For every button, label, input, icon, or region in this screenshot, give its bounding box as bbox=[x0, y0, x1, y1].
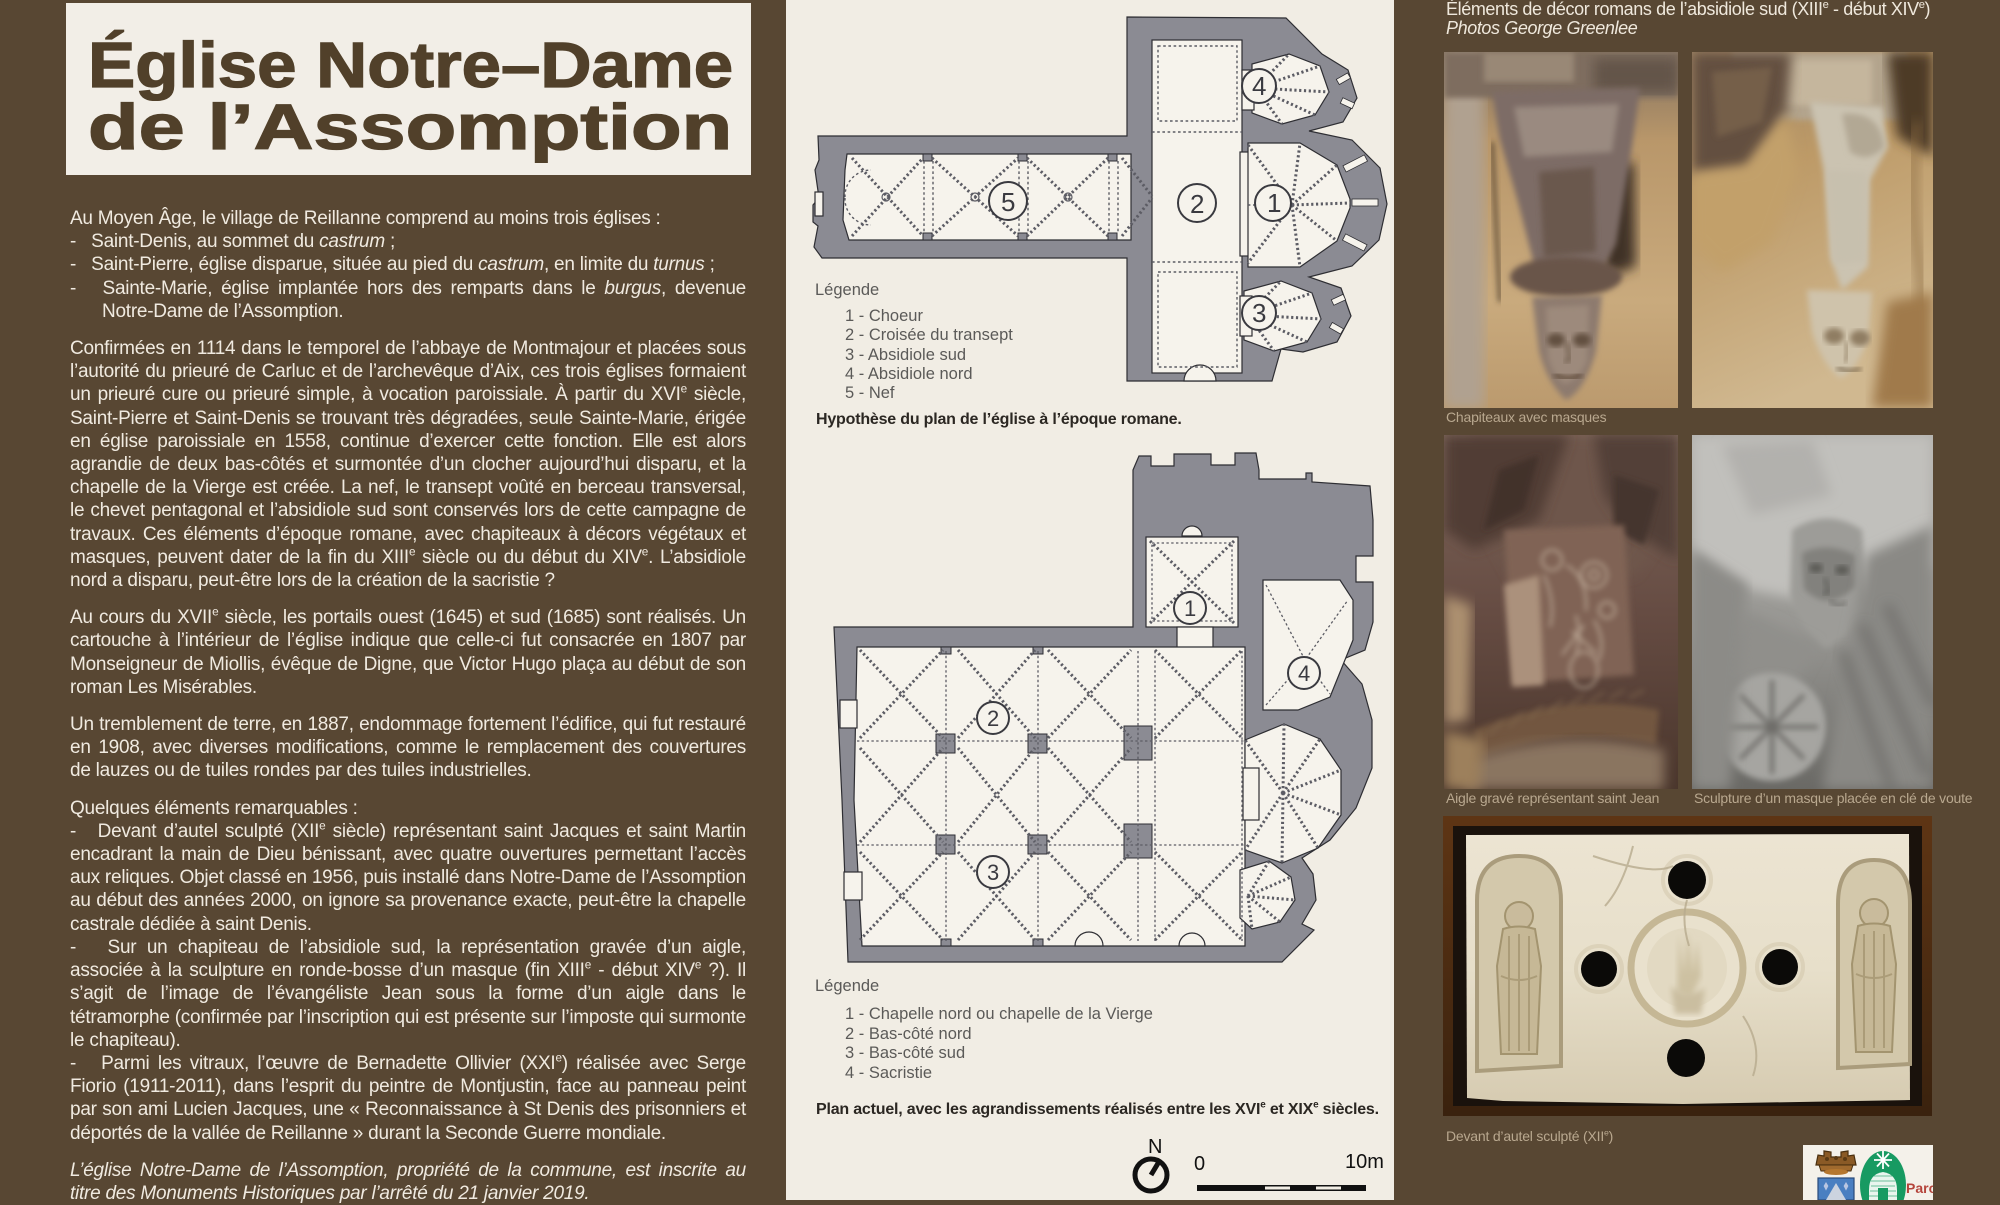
svg-text:2: 2 bbox=[1190, 189, 1204, 219]
svg-text:5: 5 bbox=[1001, 187, 1015, 217]
svg-text:0: 0 bbox=[1194, 1153, 1205, 1175]
svg-text:10m: 10m bbox=[1345, 1151, 1384, 1173]
svg-text:1: 1 bbox=[1184, 596, 1196, 621]
svg-text:3: 3 bbox=[1252, 298, 1266, 328]
svg-text:Parc: Parc bbox=[1906, 1180, 1933, 1196]
svg-text:4: 4 bbox=[1298, 661, 1310, 686]
svg-text:1: 1 bbox=[1267, 188, 1281, 218]
svg-text:N: N bbox=[1148, 1136, 1162, 1158]
svg-text:3: 3 bbox=[987, 860, 999, 885]
svg-text:4: 4 bbox=[1252, 71, 1266, 101]
svg-text:2: 2 bbox=[987, 706, 999, 731]
